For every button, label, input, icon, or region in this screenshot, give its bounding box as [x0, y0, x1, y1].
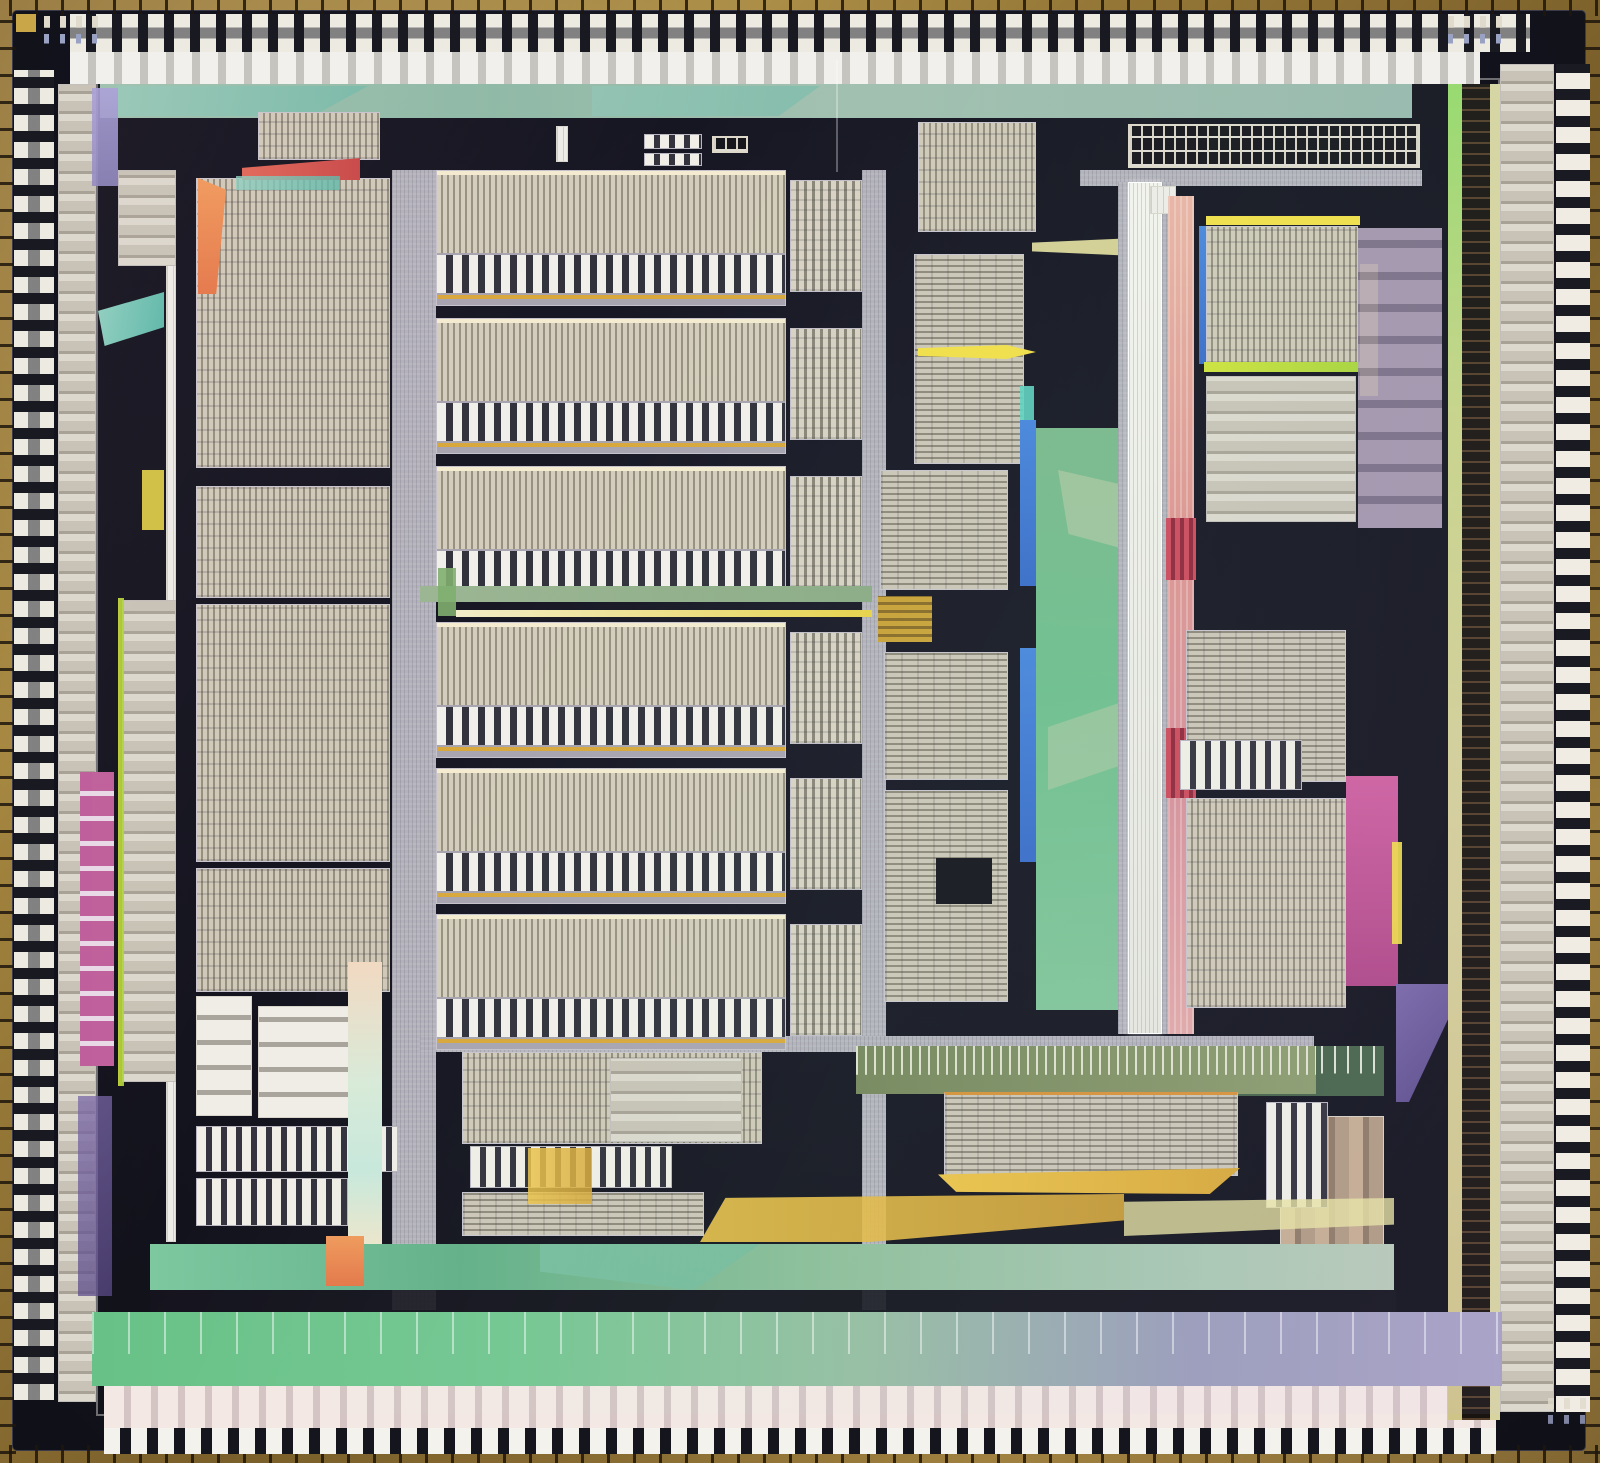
gold-patch — [528, 1148, 592, 1204]
green-wedge — [98, 292, 164, 346]
side-block — [790, 180, 862, 292]
side-block — [790, 778, 862, 890]
array-block — [1186, 798, 1346, 1008]
datapath-block — [436, 768, 786, 904]
orange-patch — [326, 1236, 364, 1286]
wire-bundle — [836, 60, 870, 172]
gold-triangle — [700, 1194, 1124, 1242]
white-spine — [1128, 182, 1162, 1034]
pastel-strip — [348, 962, 382, 1260]
blue-strip — [1020, 648, 1036, 862]
right-inner-column — [1500, 64, 1554, 1412]
comb-block — [1266, 1102, 1328, 1208]
comb-block — [1180, 740, 1302, 790]
purple-facet — [1396, 984, 1448, 1102]
olive-band — [856, 1046, 1316, 1094]
comb-block — [196, 1178, 348, 1226]
array-block — [914, 254, 1024, 464]
die-blocks-layer — [0, 0, 1600, 1463]
datapath-block — [436, 466, 786, 602]
chartreuse-line — [1204, 362, 1362, 372]
array-block — [944, 1092, 1238, 1176]
spine-rail — [1118, 182, 1128, 1034]
fiducial-marks — [1448, 16, 1512, 44]
array-block — [1206, 226, 1358, 364]
test-structure — [712, 136, 748, 153]
khaki-bus-left — [1448, 84, 1462, 1420]
array-block — [196, 486, 390, 598]
mask-mark — [556, 126, 568, 162]
side-block — [790, 328, 862, 440]
violet-wedge — [92, 88, 118, 186]
comb-block — [918, 122, 1036, 232]
bottom-wires — [92, 1312, 1502, 1354]
ladder-block — [196, 996, 252, 1116]
green-channel — [420, 586, 872, 602]
yellow-sliver — [1392, 842, 1402, 944]
test-structure — [644, 153, 702, 166]
mauve-stack — [1358, 228, 1442, 528]
cell-block — [610, 1058, 742, 1142]
blue-strip — [1020, 420, 1036, 586]
fiducial-marks — [1548, 1398, 1590, 1424]
side-block — [790, 632, 862, 744]
datapath-block — [436, 318, 786, 454]
array-block — [880, 470, 1008, 590]
white-stack — [258, 1006, 352, 1118]
green-post — [438, 568, 456, 616]
side-block — [790, 476, 862, 588]
fiducial-marks — [44, 16, 108, 44]
magenta-patch — [1346, 776, 1398, 986]
array-block — [196, 604, 390, 862]
gold-pad-mark — [16, 14, 36, 32]
datapath-block — [436, 622, 786, 758]
teal-wedge — [236, 176, 340, 190]
side-block — [790, 924, 862, 1036]
cell-block — [1206, 376, 1356, 522]
black-band — [150, 1290, 1396, 1314]
right-dark-column — [1462, 84, 1490, 1420]
datapath-block — [436, 914, 786, 1050]
die-photo — [0, 0, 1600, 1463]
magenta-comb — [80, 772, 114, 1066]
array-block — [196, 178, 390, 468]
cell-column — [122, 600, 176, 1082]
test-structure — [644, 134, 702, 149]
purple-column — [78, 1096, 112, 1296]
center-right-channel — [862, 170, 886, 1310]
crimson-block — [1166, 518, 1196, 580]
comb-block — [258, 112, 380, 160]
gold-detail — [878, 596, 932, 642]
cell-block — [118, 170, 176, 266]
yellow-patch — [142, 470, 164, 530]
yellow-line — [1206, 216, 1360, 225]
array-block — [884, 652, 1008, 780]
datapath-block — [436, 170, 786, 306]
dark-sub-block — [936, 858, 992, 904]
rom-grid — [1128, 124, 1420, 168]
khaki-bus-right — [1490, 84, 1500, 1420]
warm-line — [456, 610, 872, 617]
yellow-bus — [118, 598, 124, 1086]
left-center-channel — [392, 170, 436, 1310]
